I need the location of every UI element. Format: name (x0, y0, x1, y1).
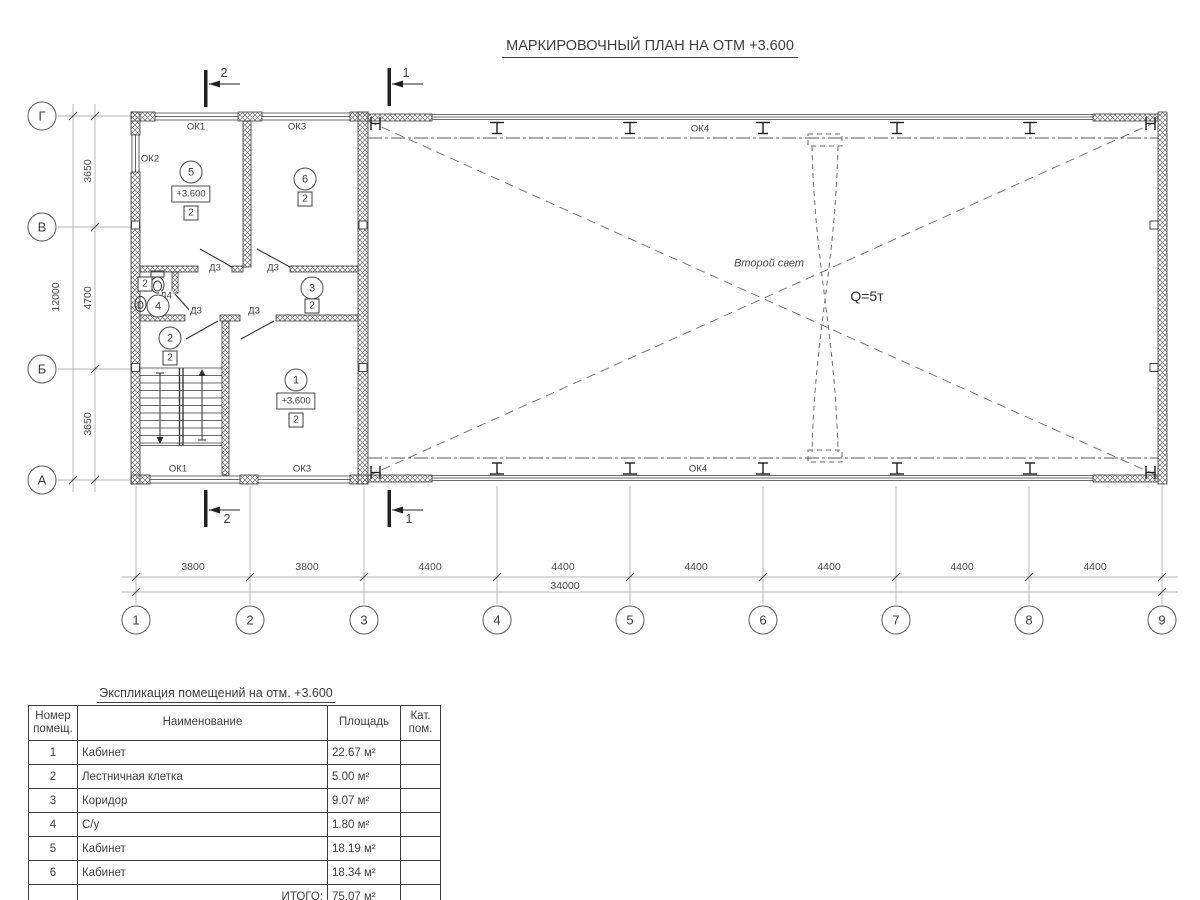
grid-axis-1: 1 (122, 606, 151, 635)
room-3-number: 3 (301, 277, 324, 300)
dim-bay-6-7: 4400 (817, 562, 840, 573)
col-header-number: Номер помещ. (29, 706, 78, 741)
grid-axis-v: В (28, 213, 57, 242)
grid-axis-a: А (28, 466, 57, 495)
grid-axis-4: 4 (483, 606, 512, 635)
table-row: 5 Кабинет 18.19 м² (29, 837, 441, 861)
room-5-category: 2 (184, 206, 199, 221)
beam-symbols (371, 117, 1155, 479)
room-3-category: 2 (305, 299, 320, 314)
walls (131, 112, 1167, 484)
total-label-cell: ИТОГО: (78, 885, 328, 900)
window-label-ok1: ОК1 (186, 122, 206, 132)
room-area-cell: 22.67 м² (328, 741, 401, 765)
window-label-ok4-top: ОК4 (690, 124, 710, 134)
door-label-d3-room5: Д3 (208, 263, 222, 273)
room-number-cell: 3 (29, 789, 78, 813)
dim-bay-8-9: 4400 (1083, 562, 1106, 573)
room-2-category: 2 (163, 351, 178, 366)
room-5-elevation: +3.600 (171, 186, 210, 203)
room-name-cell: Лестничная клетка (78, 765, 328, 789)
drawing-title: МАРКИРОВОЧНЫЙ ПЛАН НА ОТМ +3.600 (502, 38, 798, 58)
col-header-name: Наименование (78, 706, 328, 741)
dim-bay-1-2: 3800 (181, 562, 204, 573)
room-name-cell: Кабинет (78, 741, 328, 765)
room-area-cell: 18.19 м² (328, 837, 401, 861)
grid-axis-6: 6 (749, 606, 778, 635)
table-row: 1 Кабинет 22.67 м² (29, 741, 441, 765)
i-beam-top (490, 123, 1037, 134)
crane-capacity-label: Q=5т (849, 289, 884, 303)
i-beam-bottom (490, 463, 1037, 474)
room-number-cell: 4 (29, 813, 78, 837)
dim-row-g-v: 3650 (83, 159, 94, 182)
room-category-cell (401, 861, 441, 885)
room-number-cell: 5 (29, 837, 78, 861)
room-4-category: 2 (138, 277, 153, 292)
pilasters (132, 221, 1159, 372)
dim-bay-4-5: 4400 (551, 562, 574, 573)
room-5-number: 5 (180, 161, 203, 184)
dim-bay-5-6: 4400 (684, 562, 707, 573)
room-name-cell: Кабинет (78, 837, 328, 861)
room-category-cell (401, 789, 441, 813)
room-1-elevation: +3.600 (276, 393, 315, 410)
floor-plan-sheet: МАРКИРОВОЧНЫЙ ПЛАН НА ОТМ +3.600 2 1 2 1… (0, 0, 1200, 900)
table-header-row: Номер помещ. Наименование Площадь Кат. п… (29, 706, 441, 741)
grid-axis-8: 8 (1015, 606, 1044, 635)
grid-axis-9: 9 (1148, 606, 1177, 635)
table-row: 2 Лестничная клетка 5.00 м² (29, 765, 441, 789)
dim-row-v-b: 4700 (83, 286, 94, 309)
section-2-label-top: 2 (221, 67, 228, 80)
table-title: Экспликация помещений на отм. +3.600 (28, 686, 404, 700)
staircase (140, 368, 222, 446)
room-category-cell (401, 837, 441, 861)
room-category-cell (401, 765, 441, 789)
room-number-cell: 1 (29, 741, 78, 765)
room-name-cell: Кабинет (78, 861, 328, 885)
dim-total-width: 34000 (549, 581, 580, 592)
window-label-ok3-bottom: ОК3 (292, 464, 312, 474)
col-header-area: Площадь (328, 706, 401, 741)
window-label-ok2: ОК2 (140, 154, 160, 164)
dimension-ticks (69, 112, 1166, 596)
door-label-d3-room2: Д3 (189, 306, 203, 316)
room-1-category: 2 (289, 413, 304, 428)
window-label-ok1-bottom: ОК1 (168, 464, 188, 474)
room-explication-table: Номер помещ. Наименование Площадь Кат. п… (28, 705, 441, 900)
room-name-cell: Коридор (78, 789, 328, 813)
room-category-cell (401, 741, 441, 765)
room-4-number: 4 (147, 295, 170, 318)
grid-axis-b: Б (28, 355, 57, 384)
second-light-note: Второй свет (733, 259, 805, 270)
section-1-label-top: 1 (403, 67, 410, 80)
grid-axis-7: 7 (882, 606, 911, 635)
room-number-cell: 2 (29, 765, 78, 789)
col-header-category: Кат. пом. (401, 706, 441, 741)
dim-bay-7-8: 4400 (950, 562, 973, 573)
room-area-cell: 18.34 м² (328, 861, 401, 885)
section-2-label-bottom: 2 (224, 513, 231, 526)
dim-bay-3-4: 4400 (418, 562, 441, 573)
door-label-d3-room6: Д3 (266, 263, 280, 273)
room-number-cell: 6 (29, 861, 78, 885)
table-row: 6 Кабинет 18.34 м² (29, 861, 441, 885)
total-empty-cell (29, 885, 78, 900)
room-category-cell (401, 813, 441, 837)
grid-axis-2: 2 (236, 606, 265, 635)
room-name-cell: С/у (78, 813, 328, 837)
grid-axis-g: Г (28, 102, 57, 131)
dim-row-b-a: 3650 (83, 412, 94, 435)
total-area-cell: 75.07 м² (328, 885, 401, 900)
door-label-d3-room1: Д3 (247, 306, 261, 316)
room-6-number: 6 (294, 168, 317, 191)
room-2-number: 2 (159, 327, 182, 350)
grid-axis-5: 5 (616, 606, 645, 635)
room-area-cell: 9.07 м² (328, 789, 401, 813)
table-total-row: ИТОГО: 75.07 м² (29, 885, 441, 900)
table-row: 4 С/у 1.80 м² (29, 813, 441, 837)
room-area-cell: 5.00 м² (328, 765, 401, 789)
window-label-ok4-bottom: ОК4 (688, 464, 708, 474)
window-label-ok3: ОК3 (287, 122, 307, 132)
room-6-category: 2 (298, 192, 313, 207)
table-row: 3 Коридор 9.07 м² (29, 789, 441, 813)
corner-beams (371, 117, 1155, 479)
dim-total-height: 12000 (51, 281, 62, 312)
total-category-cell (401, 885, 441, 900)
section-1-label-bottom: 1 (406, 513, 413, 526)
grid-axis-3: 3 (350, 606, 379, 635)
room-1-number: 1 (285, 369, 308, 392)
dim-bay-2-3: 3800 (295, 562, 318, 573)
window-lines (132, 113, 1093, 483)
room-area-cell: 1.80 м² (328, 813, 401, 837)
crane-symbol (808, 134, 842, 462)
hall-markings (368, 121, 1158, 476)
